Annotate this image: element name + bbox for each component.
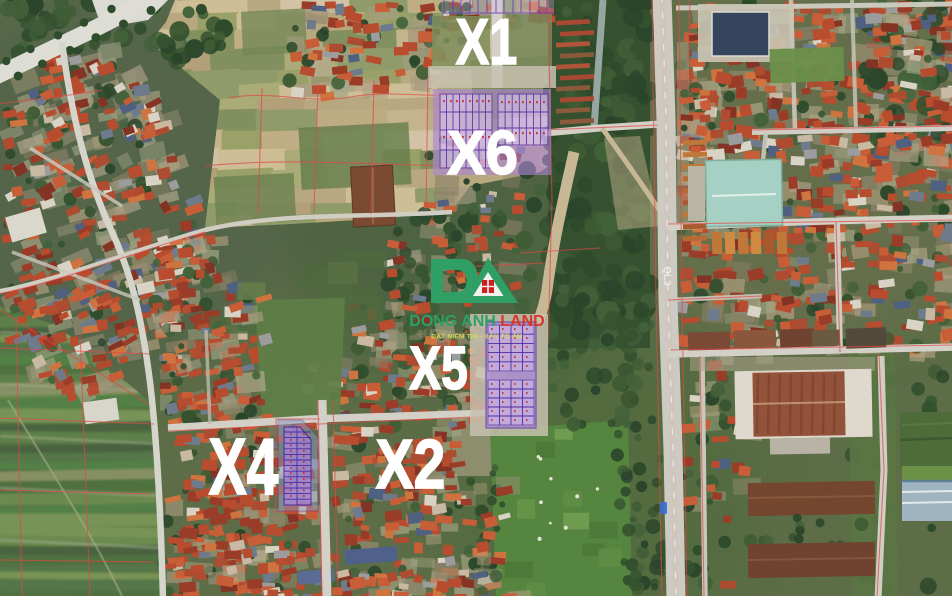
svg-text:X4: X4 xyxy=(209,422,279,512)
svg-text:X2: X2 xyxy=(376,426,446,504)
svg-text:QL3: QL3 xyxy=(661,266,672,286)
svg-text:X5: X5 xyxy=(409,333,468,402)
svg-text:DONG ANH LAND: DONG ANH LAND xyxy=(409,313,544,330)
svg-text:X1: X1 xyxy=(456,6,518,79)
svg-text:X6: X6 xyxy=(447,118,518,187)
